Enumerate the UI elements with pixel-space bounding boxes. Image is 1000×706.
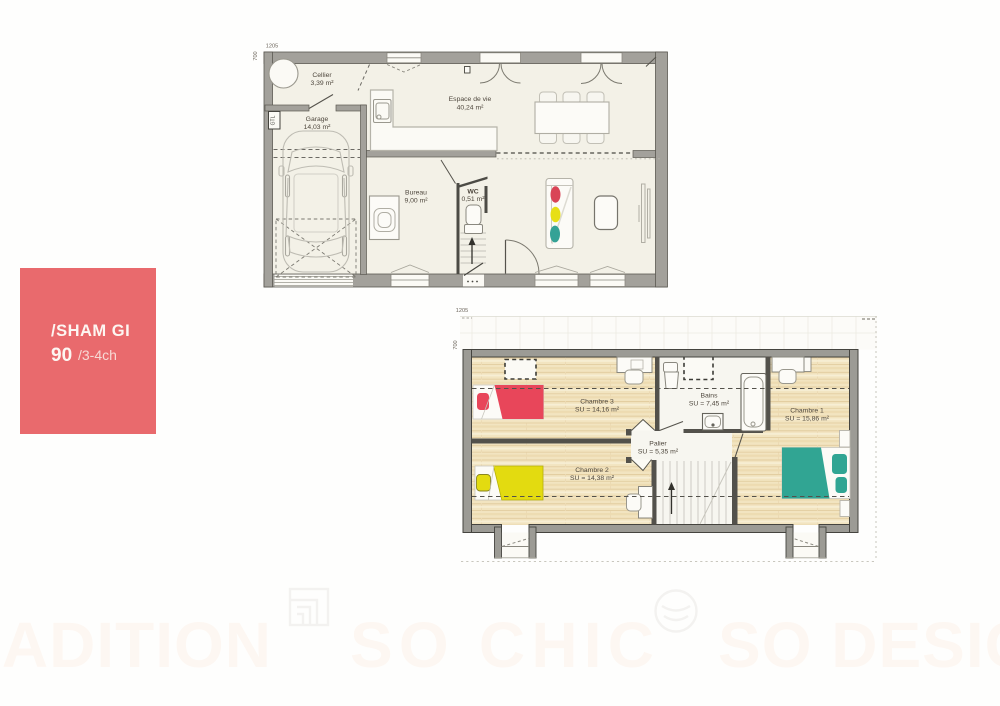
svg-text:700: 700 (253, 51, 259, 60)
svg-text:1205: 1205 (266, 44, 278, 50)
svg-text:Chambre 3: Chambre 3 (580, 399, 614, 406)
svg-text:3,39 m²: 3,39 m² (310, 80, 334, 87)
svg-text:Bains: Bains (700, 393, 718, 400)
svg-text:Espace de vie: Espace de vie (449, 96, 492, 103)
svg-text:Cellier: Cellier (312, 72, 332, 79)
svg-text:700: 700 (453, 340, 459, 349)
svg-text:GTL: GTL (271, 115, 277, 125)
svg-text:WC: WC (467, 189, 478, 196)
svg-text:SU = 7,45 m²: SU = 7,45 m² (689, 401, 730, 408)
svg-text:/3-4ch: /3-4ch (78, 347, 117, 363)
svg-text:1205: 1205 (456, 308, 468, 314)
svg-text:Chambre 1: Chambre 1 (790, 408, 824, 415)
svg-text:14,03 m²: 14,03 m² (304, 124, 332, 131)
svg-text:Palier: Palier (649, 441, 667, 448)
svg-text:SU = 14,16 m²: SU = 14,16 m² (575, 407, 620, 414)
svg-text:Chambre 2: Chambre 2 (575, 467, 609, 474)
svg-text:0,51 m²: 0,51 m² (461, 196, 485, 203)
svg-text:SO DESIGN: SO DESIGN (718, 609, 1000, 681)
svg-text:Bureau: Bureau (405, 190, 427, 197)
svg-text:9,00 m²: 9,00 m² (404, 198, 428, 205)
svg-text:40,24 m²: 40,24 m² (457, 105, 485, 112)
svg-text:SU = 5,35 m²: SU = 5,35 m² (638, 449, 679, 456)
svg-text:/SHAM GI: /SHAM GI (51, 322, 130, 340)
svg-text:SU = 15,86 m²: SU = 15,86 m² (785, 416, 830, 423)
svg-text:SU = 14,38 m²: SU = 14,38 m² (570, 475, 615, 482)
svg-text:TRADITION: TRADITION (0, 609, 272, 681)
svg-text:Garage: Garage (306, 116, 329, 123)
svg-text:90: 90 (51, 345, 72, 366)
